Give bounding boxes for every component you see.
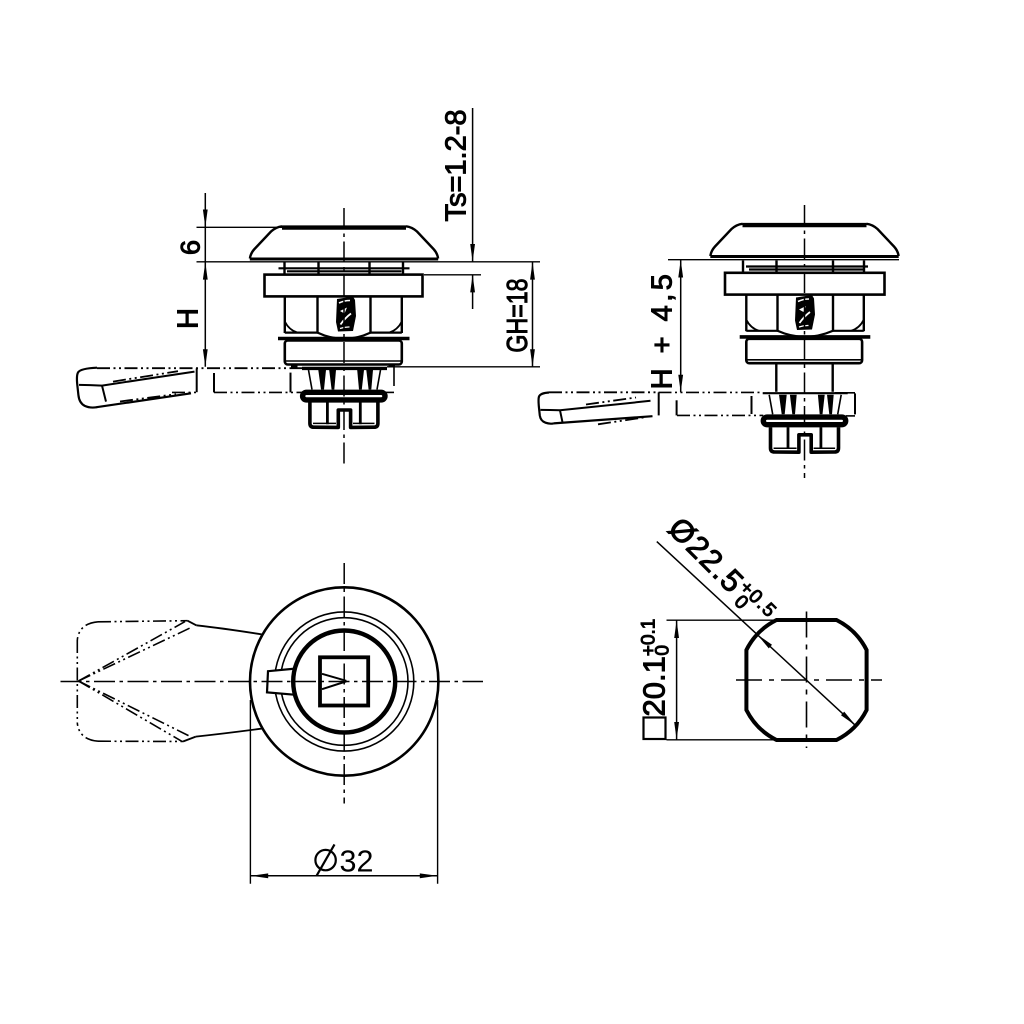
svg-text:GH=18: GH=18	[500, 278, 533, 352]
svg-text:H + 4,5: H + 4,5	[647, 271, 679, 390]
svg-text:Ts=1.2-8: Ts=1.2-8	[441, 109, 473, 221]
svg-text:6: 6	[176, 240, 206, 255]
svg-text:32: 32	[340, 844, 374, 878]
svg-text:H: H	[173, 308, 205, 329]
